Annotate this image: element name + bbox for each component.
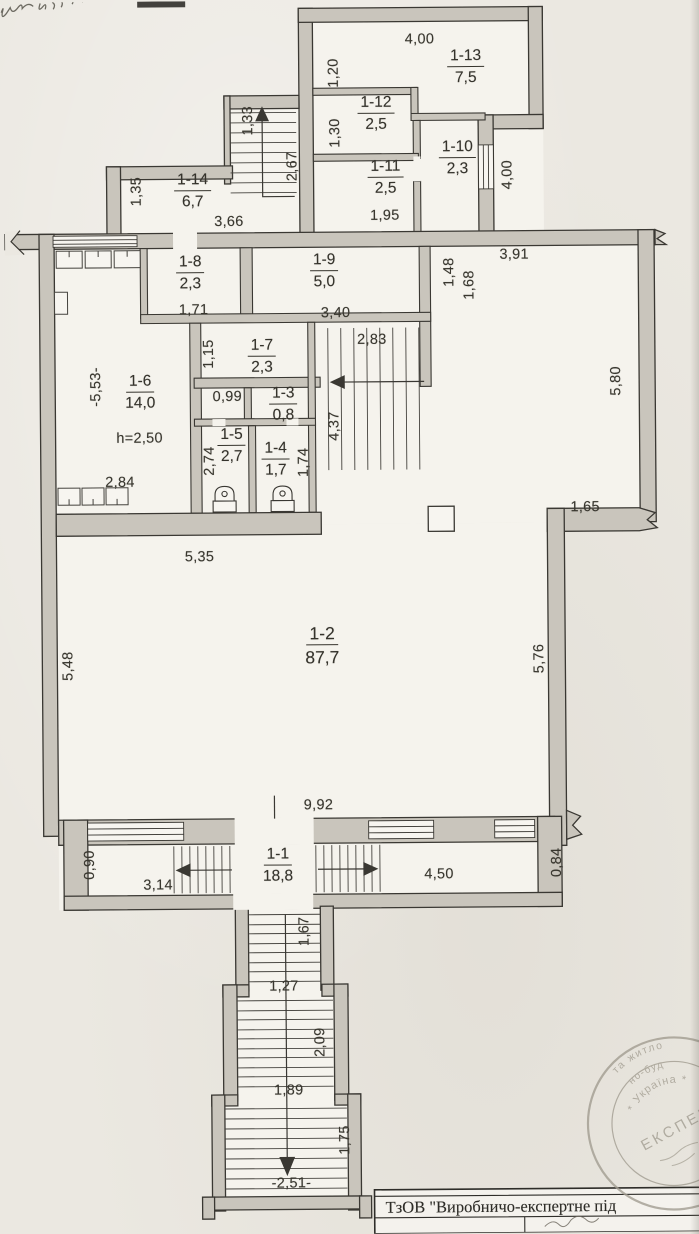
- room-number: 1-5: [217, 426, 246, 446]
- room-area: 2,5: [365, 113, 387, 134]
- room-number: 1-2: [306, 623, 337, 645]
- dimension-label: 4,50: [424, 866, 454, 882]
- room-number: 1-12: [357, 94, 394, 114]
- dimension-label: 0,90: [82, 850, 98, 880]
- room-number: 1-6: [126, 373, 155, 393]
- dimension-label: 4,00: [499, 160, 515, 190]
- dimension-label: 4,00: [405, 31, 435, 47]
- room-label-1-3: 1-30,8: [269, 384, 298, 424]
- labels-layer: 1-137,51-122,51-112,51-102,31-146,71-82,…: [0, 0, 699, 1234]
- dimension-label: 1,95: [370, 208, 400, 224]
- dimension-label: 0,84: [549, 848, 565, 878]
- dimension-label: 1,30: [327, 118, 343, 148]
- dimension-label: 1,35: [129, 177, 145, 207]
- room-number: 1-1: [264, 845, 293, 865]
- dimension-label: 1,67: [296, 917, 312, 947]
- dimension-label: h=2,50: [116, 430, 163, 446]
- dimension-label: -2,51-: [272, 1175, 312, 1191]
- room-label-1-7: 1-72,3: [248, 337, 277, 377]
- room-area: 2,3: [251, 356, 273, 377]
- dimension-label: 5,80: [608, 366, 624, 396]
- dimension-label: -5,53-: [88, 367, 104, 407]
- room-area: 5,0: [313, 271, 335, 292]
- room-label-1-11: 1-112,5: [367, 158, 403, 198]
- dimension-label: 5,48: [60, 651, 76, 681]
- room-area: 18,8: [263, 865, 293, 886]
- room-label-1-4: 1-41,7: [261, 439, 290, 479]
- room-area: 7,5: [455, 67, 477, 88]
- dimension-label: 5,76: [531, 644, 547, 674]
- room-number: 1-3: [269, 384, 298, 404]
- dimension-label: 2,74: [202, 446, 218, 476]
- room-area: 2,3: [447, 158, 469, 179]
- dimension-label: 3,40: [321, 305, 351, 321]
- dimension-label: 3,66: [214, 214, 244, 230]
- room-number: 1-4: [261, 439, 290, 459]
- room-label-1-14: 1-146,7: [174, 171, 211, 211]
- dimension-label: 2,67: [284, 152, 300, 182]
- dimension-label: 2,09: [312, 1027, 328, 1057]
- room-label-1-12: 1-122,5: [357, 94, 394, 134]
- dimension-label: 1,68: [461, 270, 477, 300]
- dimension-label: 1,27: [269, 978, 299, 994]
- scanned-floor-plan-page: та житло но-буд * Україна * ЕКСПЕР 1-137…: [0, 0, 699, 1234]
- room-number: 1-10: [439, 138, 476, 158]
- room-label-1-8: 1-82,3: [176, 253, 205, 293]
- dimension-label: 1,89: [274, 1082, 304, 1098]
- dimension-label: 1,75: [337, 1125, 353, 1155]
- room-label-1-9: 1-95,0: [310, 251, 339, 291]
- room-label-1-10: 1-102,3: [439, 138, 476, 178]
- room-number: 1-14: [174, 171, 211, 191]
- dimension-label: 1,65: [570, 499, 600, 515]
- room-label-1-1: 1-118,8: [263, 845, 293, 885]
- dimension-label: 0,99: [212, 389, 242, 405]
- room-number: 1-8: [176, 253, 205, 273]
- room-number: 1-9: [310, 251, 339, 271]
- room-number: 1-13: [447, 47, 484, 67]
- room-area: 0,8: [273, 404, 295, 425]
- floor-plan: та житло но-буд * Україна * ЕКСПЕР 1-137…: [0, 0, 699, 1234]
- room-area: 14,0: [125, 392, 155, 413]
- room-area: 2,7: [221, 445, 243, 466]
- dimension-label: 1,74: [296, 448, 312, 478]
- room-area: 2,3: [180, 273, 202, 294]
- dimension-label: 5,35: [185, 549, 215, 565]
- dimension-label: 1,15: [201, 339, 217, 369]
- dimension-label: 3,14: [143, 877, 173, 893]
- room-area: 2,5: [375, 177, 397, 198]
- dimension-label: 1,33: [240, 106, 256, 136]
- room-label-1-5: 1-52,7: [217, 426, 246, 466]
- title-block-company: ТзОВ "Виробничо-експертне під: [386, 1195, 699, 1219]
- dimension-labels: 4,001,953,663,911,713,402,830,99h=2,502,…: [0, 0, 694, 3]
- room-label-1-13: 1-137,5: [447, 47, 484, 87]
- dimension-label: 1,48: [441, 257, 457, 287]
- dimension-label: 4,37: [326, 411, 342, 441]
- room-area: 87,7: [305, 645, 339, 668]
- dimension-label: 1,20: [326, 58, 342, 88]
- room-label-1-6: 1-614,0: [125, 373, 155, 413]
- dimension-label: 2,84: [105, 475, 135, 491]
- room-area: 6,7: [182, 191, 204, 212]
- dimension-label: 2,83: [357, 332, 387, 348]
- room-number: 1-11: [367, 158, 403, 178]
- room-label-1-2: 1-287,7: [305, 623, 339, 668]
- dimension-label: 1,71: [179, 302, 209, 318]
- dimension-label: 3,91: [499, 247, 529, 263]
- room-labels: 1-137,51-122,51-112,51-102,31-146,71-82,…: [0, 0, 694, 3]
- dimension-label: 9,92: [304, 797, 334, 813]
- room-number: 1-7: [248, 337, 277, 357]
- room-area: 1,7: [265, 459, 287, 480]
